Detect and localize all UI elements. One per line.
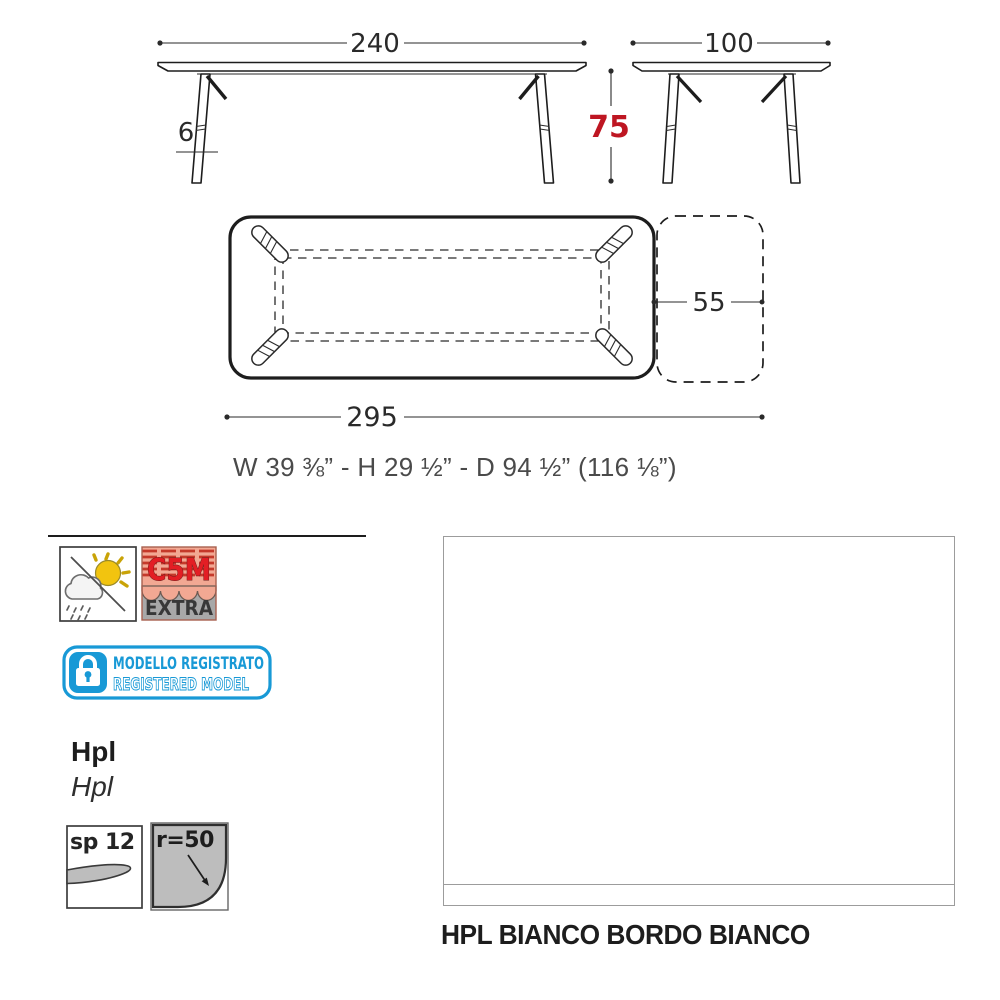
radius-label: r=50 bbox=[156, 828, 214, 853]
side-tabletop bbox=[633, 63, 830, 72]
divider-line bbox=[48, 535, 366, 537]
finish-caption: HPL BIANCO BORDO BIANCO bbox=[441, 919, 810, 951]
material-name: Hpl bbox=[71, 736, 116, 768]
registered-model-badge: MODELLO REGISTRATO REGISTERED MODEL bbox=[62, 645, 272, 700]
material-name-secondary: Hpl bbox=[71, 771, 113, 803]
side-right-leg bbox=[762, 74, 800, 183]
c5m-extra-badge: C5M EXTRA bbox=[141, 546, 217, 621]
height-label: 75 bbox=[588, 110, 630, 145]
extension-dimension: 55 bbox=[652, 288, 765, 318]
front-left-leg bbox=[192, 74, 226, 183]
front-view: 240 6 bbox=[157, 29, 586, 183]
extra-label: EXTRA bbox=[145, 596, 213, 620]
total-length-label: 295 bbox=[346, 402, 398, 433]
plan-view: 55 295 bbox=[224, 216, 764, 433]
spec-sheet: 240 6 bbox=[0, 0, 1000, 1000]
side-view: 100 bbox=[630, 29, 830, 183]
outdoor-weather-icon bbox=[59, 546, 137, 622]
registered-model-line2: REGISTERED MODEL bbox=[113, 675, 249, 694]
front-tabletop bbox=[158, 63, 586, 72]
height-dimension: 75 bbox=[588, 68, 630, 183]
side-depth-label: 100 bbox=[704, 29, 754, 59]
finish-swatch bbox=[443, 536, 955, 906]
front-right-leg bbox=[520, 74, 554, 183]
finish-swatch-surface bbox=[444, 537, 954, 885]
radius-icon: r=50 bbox=[150, 822, 229, 911]
total-length-dimension: 295 bbox=[224, 402, 764, 433]
leg-thickness-label: 6 bbox=[178, 118, 195, 148]
imperial-dimensions-text: W 39 ⅜” - H 29 ½” - D 94 ½” (116 ⅛”) bbox=[233, 452, 677, 483]
registered-model-line1: MODELLO REGISTRATO bbox=[113, 654, 264, 673]
technical-drawing: 240 6 bbox=[0, 0, 1000, 500]
thickness-label: sp 12 bbox=[70, 830, 135, 855]
thickness-icon: sp 12 bbox=[66, 825, 143, 909]
c5m-label: C5M bbox=[147, 553, 211, 588]
side-depth-dimension: 100 bbox=[630, 29, 830, 59]
front-width-dimension: 240 bbox=[157, 29, 586, 59]
extension-label: 55 bbox=[692, 288, 725, 318]
finish-swatch-edge bbox=[444, 885, 954, 905]
front-width-label: 240 bbox=[350, 29, 400, 59]
plan-tabletop bbox=[230, 217, 654, 378]
side-left-leg bbox=[663, 74, 701, 183]
